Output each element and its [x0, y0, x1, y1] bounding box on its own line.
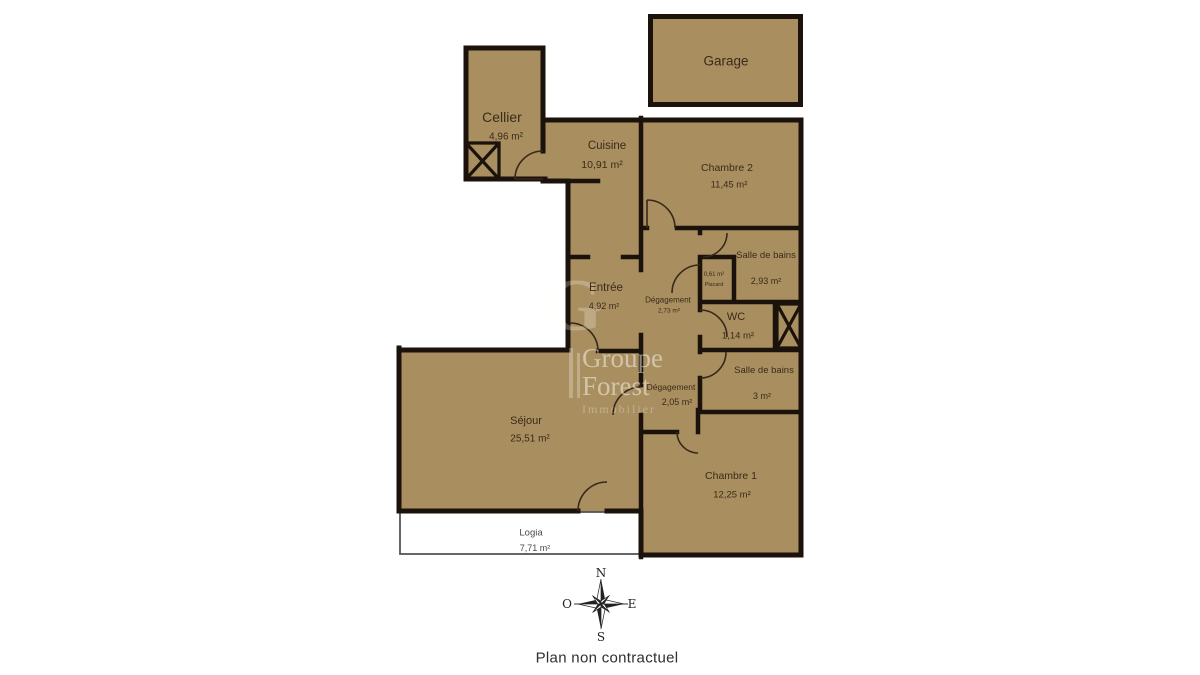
room-area-entree: 4,92 m²	[589, 301, 620, 311]
watermark-logo-bar	[569, 348, 573, 398]
room-area-logia: 7,71 m²	[520, 543, 551, 553]
room-area-chambre2: 11,45 m²	[711, 180, 748, 191]
room-label-sdb1: Salle de bains	[734, 250, 798, 262]
room-label-garage: Garage	[703, 54, 748, 69]
room-label-logia: Logia	[519, 528, 542, 539]
room-area-degagement2: 2,05 m²	[662, 397, 693, 407]
room-area-placard: 0,61 m²	[704, 272, 724, 278]
room-label-sdb2: Salle de bains	[732, 365, 796, 377]
disclaimer-text: Plan non contractuel	[536, 650, 679, 667]
room-label-cellier: Cellier	[482, 109, 522, 125]
compass-north-label: N	[596, 566, 607, 580]
room-label-sejour: Séjour	[510, 415, 542, 427]
room-area-cellier: 4,96 m²	[489, 132, 523, 143]
compass-south-label: S	[597, 630, 605, 644]
room-area-sdb2: 3 m²	[753, 391, 771, 401]
compass-east-label: E	[628, 597, 637, 611]
room-label-degagement1: Dégagement	[645, 296, 691, 305]
room-area-wc: 1,14 m²	[722, 331, 754, 342]
room-label-degagement2: Dégagement	[647, 382, 696, 392]
floorplan-canvas: G Groupe Forest Immobilier Garage Cellie…	[0, 0, 1200, 675]
compass-rose-icon	[574, 579, 628, 629]
room-area-cuisine: 10,91 m²	[581, 159, 622, 171]
room-area-degagement1: 2,73 m²	[658, 308, 680, 315]
room-label-cuisine: Cuisine	[588, 140, 626, 152]
room-label-entree: Entrée	[589, 282, 623, 294]
room-label-wc: WC	[727, 311, 745, 323]
room-area-sdb1: 2,93 m²	[751, 276, 782, 286]
room-area-chambre1: 12,25 m²	[713, 490, 751, 501]
room-label-placard: Placard	[705, 282, 724, 288]
room-label-chambre1: Chambre 1	[705, 470, 757, 482]
watermark-logo-bar	[577, 353, 580, 398]
room-label-chambre2: Chambre 2	[701, 162, 753, 174]
compass-west-label: O	[562, 597, 572, 611]
room-area-sejour: 25,51 m²	[510, 434, 549, 445]
